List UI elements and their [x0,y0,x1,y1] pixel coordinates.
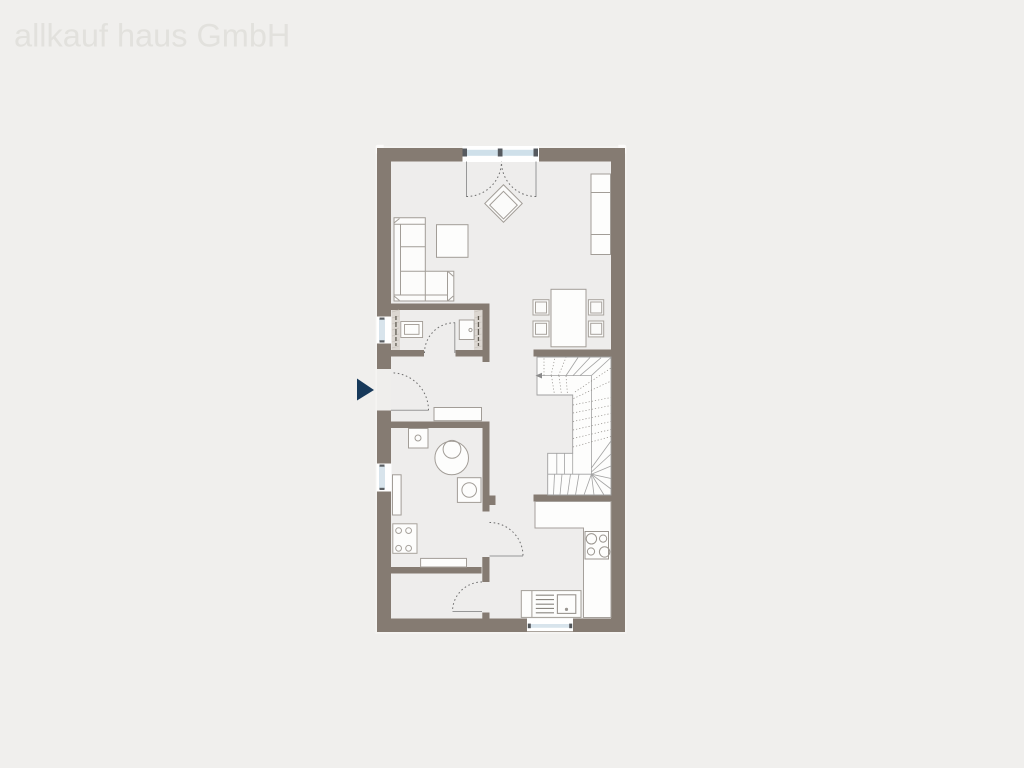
svg-text:allkauf haus GmbH: allkauf haus GmbH [14,18,290,54]
